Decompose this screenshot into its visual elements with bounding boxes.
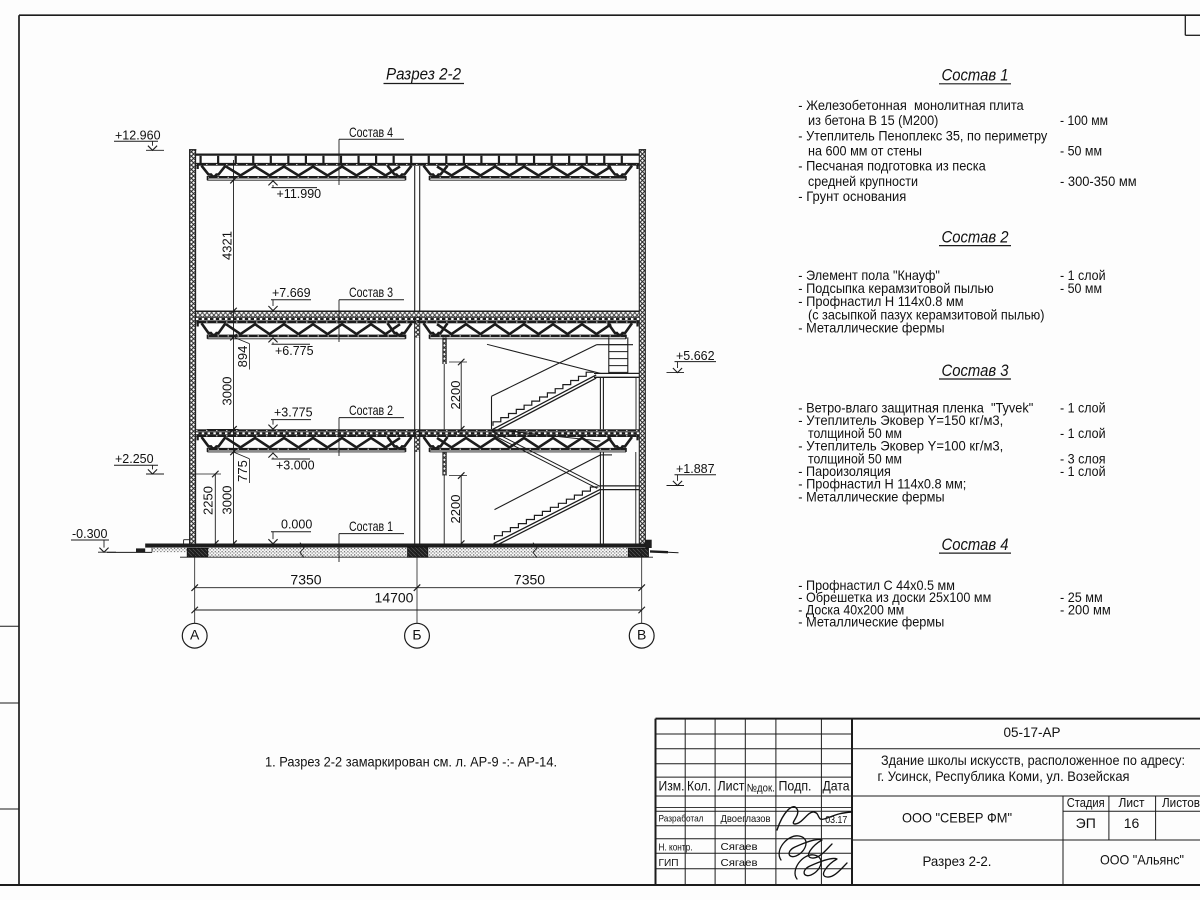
- svg-text:+3.000: +3.000: [276, 459, 315, 473]
- svg-text:В: В: [637, 627, 646, 643]
- svg-text:+2.250: +2.250: [115, 452, 154, 466]
- svg-text:Подп.: Подп.: [779, 778, 812, 794]
- svg-text:Сягаев: Сягаев: [721, 857, 758, 869]
- svg-text:+6.775: +6.775: [275, 344, 314, 358]
- svg-text:на 600 мм от стены: на 600 мм от стены: [808, 143, 922, 159]
- svg-text:- Грунт основания: - Грунт основания: [798, 188, 906, 204]
- svg-text:Н. контр.: Н. контр.: [659, 841, 693, 853]
- svg-text:+7.669: +7.669: [272, 286, 311, 300]
- svg-text:Разрез 2-2.: Разрез 2-2.: [923, 853, 992, 869]
- svg-text:Состав 1: Состав 1: [349, 518, 393, 534]
- svg-text:- Утеплитель Пеноплекс 35, по: - Утеплитель Пеноплекс 35, по периметру: [798, 127, 1047, 143]
- svg-text:г. Усинск, Республика Коми, ул: г. Усинск, Республика Коми, ул. Возейска…: [878, 768, 1130, 784]
- svg-text:Разработал: Разработал: [659, 814, 704, 825]
- svg-text:Здание школы искусств, располо: Здание школы искусств, расположенное по …: [881, 752, 1185, 768]
- svg-text:Состав 4: Состав 4: [349, 124, 393, 140]
- svg-text:- 1 слой: - 1 слой: [1060, 400, 1106, 416]
- svg-text:- 50 мм: - 50 мм: [1060, 143, 1102, 159]
- svg-text:Состав 2: Состав 2: [942, 228, 1009, 247]
- svg-text:Стадия: Стадия: [1067, 796, 1105, 810]
- svg-text:16: 16: [1124, 815, 1140, 831]
- svg-text:- 200 мм: - 200 мм: [1060, 601, 1111, 617]
- svg-text:Б: Б: [412, 627, 421, 643]
- svg-text:- Песчаная подготовка из песка: - Песчаная подготовка из песка: [798, 158, 986, 174]
- svg-text:- 100 мм: - 100 мм: [1060, 112, 1108, 128]
- svg-text:-0.300: -0.300: [72, 527, 107, 541]
- svg-text:Состав 3: Состав 3: [942, 361, 1009, 380]
- svg-text:2200: 2200: [448, 381, 463, 410]
- svg-text:Листов: Листов: [1162, 796, 1200, 810]
- svg-text:№док.: №док.: [747, 782, 775, 794]
- svg-text:Дата: Дата: [823, 778, 850, 794]
- svg-text:средней крупности: средней крупности: [808, 173, 918, 189]
- svg-text:2250: 2250: [201, 486, 216, 515]
- svg-text:14700: 14700: [375, 589, 414, 605]
- svg-text:- Металлические фермы: - Металлические фермы: [798, 614, 944, 630]
- svg-text:Двоеглазов: Двоеглазов: [721, 813, 771, 825]
- svg-text:894: 894: [235, 346, 250, 368]
- svg-text:4321: 4321: [219, 231, 234, 260]
- svg-text:3000: 3000: [219, 377, 234, 406]
- svg-text:- 1 слой: - 1 слой: [1060, 425, 1106, 441]
- svg-text:ООО "Альянс": ООО "Альянс": [1100, 851, 1184, 867]
- svg-text:Лист: Лист: [718, 778, 746, 794]
- svg-text:- 50 мм: - 50 мм: [1060, 280, 1102, 296]
- svg-text:- Металлические фермы: - Металлические фермы: [798, 488, 944, 504]
- svg-text:ООО "СЕВЕР ФМ": ООО "СЕВЕР ФМ": [902, 809, 1012, 825]
- svg-text:- Металлические фермы: - Металлические фермы: [798, 319, 944, 335]
- svg-text:Разрез 2-2: Разрез 2-2: [386, 65, 461, 84]
- svg-text:- 1 слой: - 1 слой: [1060, 463, 1106, 479]
- svg-text:ГИП: ГИП: [659, 857, 679, 869]
- svg-text:7350: 7350: [514, 572, 545, 588]
- svg-text:- 300-350 мм: - 300-350 мм: [1060, 173, 1137, 189]
- svg-text:из бетона В 15 (М200): из бетона В 15 (М200): [808, 112, 938, 128]
- svg-text:05-17-АР: 05-17-АР: [1004, 724, 1061, 740]
- svg-text:Состав 1: Состав 1: [942, 66, 1009, 85]
- svg-text:1. Разрез 2-2 замаркирован см.: 1. Разрез 2-2 замаркирован см. л. АР-9 -…: [265, 754, 557, 770]
- svg-text:3000: 3000: [219, 486, 234, 515]
- svg-text:Состав 3: Состав 3: [349, 284, 393, 300]
- svg-text:+3.775: +3.775: [274, 406, 313, 420]
- svg-text:+12.960: +12.960: [115, 128, 161, 142]
- svg-text:775: 775: [235, 460, 250, 482]
- svg-text:Кол.: Кол.: [687, 778, 711, 794]
- svg-text:Сягаев: Сягаев: [721, 841, 758, 853]
- svg-text:А: А: [190, 627, 200, 643]
- svg-text:ЭП: ЭП: [1076, 815, 1096, 831]
- svg-text:+1.887: +1.887: [676, 462, 715, 476]
- svg-text:Лист: Лист: [1119, 796, 1145, 810]
- svg-text:Состав 2: Состав 2: [349, 402, 393, 418]
- svg-text:2200: 2200: [448, 495, 463, 524]
- svg-text:Состав 4: Состав 4: [942, 535, 1009, 554]
- svg-text:03.17: 03.17: [825, 814, 847, 826]
- svg-text:0.000: 0.000: [281, 518, 312, 532]
- svg-text:Изм.: Изм.: [659, 778, 685, 794]
- svg-text:7350: 7350: [290, 572, 321, 588]
- svg-text:+11.990: +11.990: [277, 187, 322, 201]
- svg-text:- Железобетонная монолитная п: - Железобетонная монолитная плита: [798, 97, 1024, 113]
